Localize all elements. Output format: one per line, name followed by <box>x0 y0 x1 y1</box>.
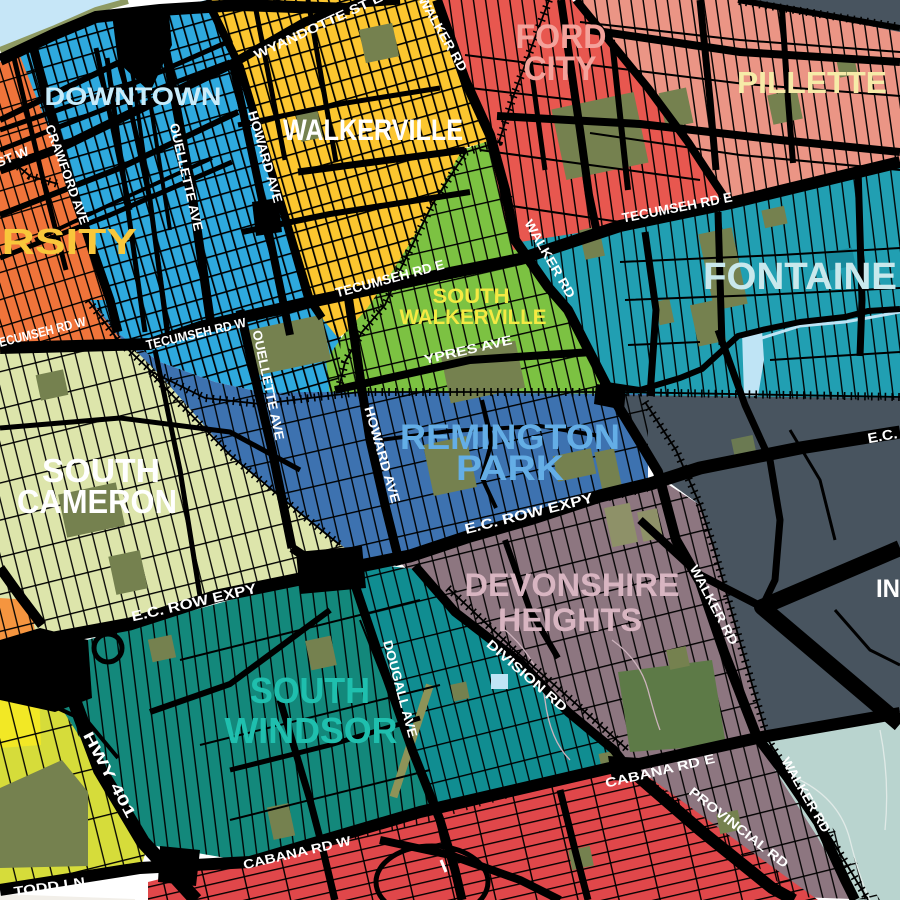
svg-text:IN: IN <box>876 575 900 603</box>
svg-text:SOUTH: SOUTH <box>250 670 370 711</box>
svg-text:HEIGHTS: HEIGHTS <box>498 602 642 638</box>
svg-text:DEVONSHIRE: DEVONSHIRE <box>465 567 680 603</box>
svg-text:WALKERVILLE: WALKERVILLE <box>283 114 463 147</box>
svg-text:DOWNTOWN: DOWNTOWN <box>45 83 222 111</box>
svg-text:CITY: CITY <box>524 50 597 88</box>
svg-text:ERSITY: ERSITY <box>0 221 137 262</box>
svg-text:PILLETTE: PILLETTE <box>737 65 887 100</box>
svg-text:SOUTH: SOUTH <box>433 285 510 308</box>
svg-text:WINDSOR: WINDSOR <box>225 710 398 751</box>
svg-text:FONTAINE: FONTAINE <box>703 256 897 298</box>
svg-text:WALKERVILLE: WALKERVILLE <box>400 306 547 329</box>
svg-text:CAMERON: CAMERON <box>17 483 177 520</box>
svg-text:PARK: PARK <box>456 449 564 488</box>
